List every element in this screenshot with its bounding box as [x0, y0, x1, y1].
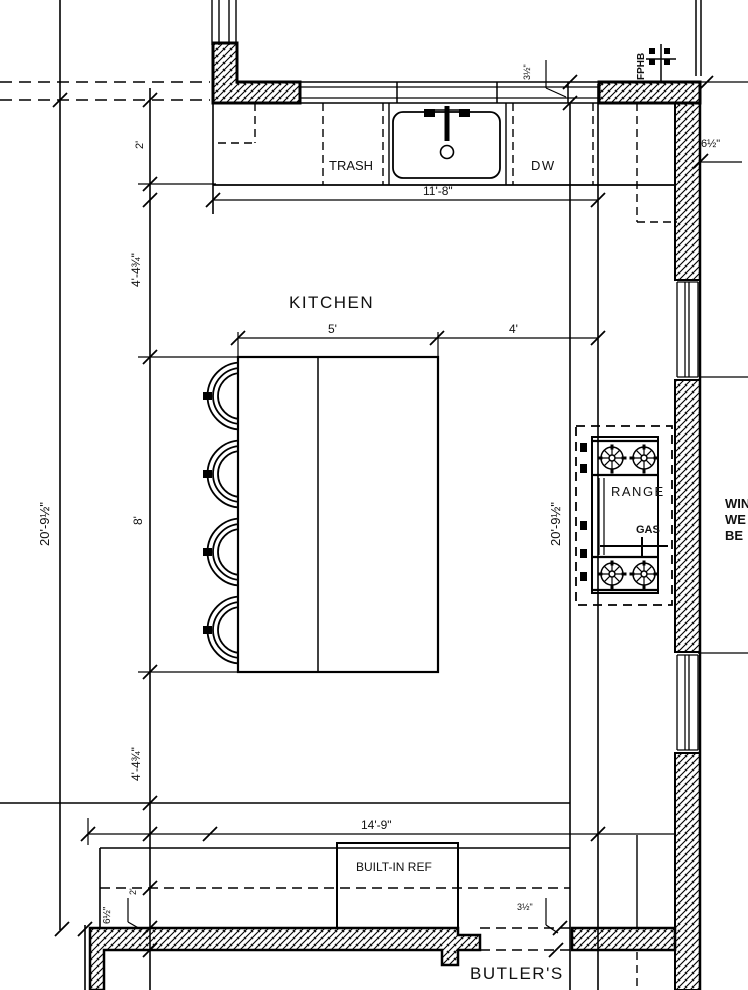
gas-label: GAS	[636, 525, 660, 536]
top-wall	[0, 43, 700, 103]
window-right-upper	[677, 282, 698, 377]
top-counter	[213, 103, 677, 222]
dim-wall-top: 3½"	[523, 64, 532, 80]
fphb-symbol	[646, 44, 676, 82]
dim-counter-run: 11'-8"	[423, 185, 453, 197]
dim-offset-bottom: 4'-4¾"	[130, 747, 142, 781]
wall-corner-top-right	[599, 82, 700, 103]
wall-corner-top-left	[213, 43, 300, 103]
dim-bottom-depth: 2'	[129, 888, 138, 895]
range-label: RANGE	[611, 485, 665, 498]
kitchen-sink	[393, 106, 500, 178]
kitchen-floor-plan: KITCHEN TRASH DW 11'-8" 2' FPHB 6½" 3½" …	[0, 0, 748, 990]
dim-room-mid: 20'-9½"	[549, 502, 562, 546]
bottom-area	[85, 835, 675, 990]
kitchen-island	[238, 357, 438, 672]
range-appliance	[576, 426, 672, 605]
dim-island-length: 8'	[132, 516, 144, 525]
window-right-lower	[677, 655, 698, 750]
dim-offset-top: 4'-4¾"	[130, 253, 142, 287]
room-label-butlers: BUTLER'S	[470, 965, 564, 982]
dishwasher-label: DW	[531, 159, 556, 172]
built-in-ref-box	[337, 843, 458, 928]
dim-island-gap: 4'	[509, 323, 518, 335]
dim-room-left: 20'-9½"	[38, 502, 51, 546]
dim-wall-top-right: 6½"	[701, 139, 720, 150]
room-label-kitchen: KITCHEN	[289, 294, 374, 311]
built-in-ref-label: BUILT-IN REF	[356, 861, 432, 873]
dim-island-width: 5'	[328, 323, 337, 335]
trash-label: TRASH	[329, 159, 373, 172]
fphb-label: FPHB	[637, 53, 647, 80]
dim-wall-bottom-left: 6½"	[103, 907, 113, 924]
dim-counter-depth: 2'	[135, 141, 146, 149]
wall-bottom-left	[90, 928, 480, 990]
dim-wall-bottom: 3½"	[517, 903, 533, 912]
clipped-note-line1: WIN	[725, 497, 748, 510]
clipped-note-line3: BE	[725, 529, 743, 542]
dim-bottom-run: 14'-9"	[361, 819, 392, 831]
wall-butlers	[572, 928, 675, 950]
clipped-note-line2: WE	[725, 513, 746, 526]
